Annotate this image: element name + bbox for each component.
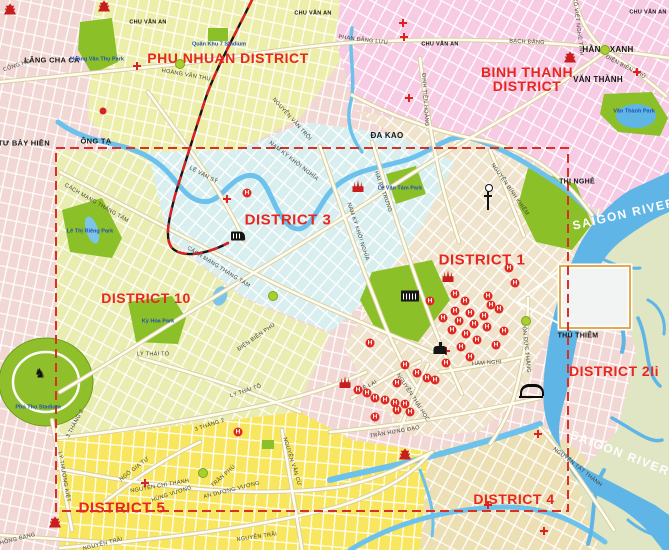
hotel-icon: H (442, 359, 451, 368)
pagoda-icon (4, 4, 16, 15)
hotel-icon: H (426, 297, 435, 306)
road-label: LÝ THƯỜNG KIỆT (56, 451, 70, 502)
road-label: TÔN ĐỨC THẮNG (520, 323, 531, 374)
hospital-icon (400, 33, 408, 41)
market-icon (434, 346, 447, 354)
place-label: THỊ NGHÈ (559, 179, 595, 186)
place-label: CHU VĂN AN (629, 10, 666, 16)
road-label: LÝ THÁI TỔ (137, 352, 170, 358)
road-label: LÝ THÁI TỔ (230, 384, 263, 399)
hotel-icon: H (500, 327, 509, 336)
hotel-icon: H (470, 320, 479, 329)
church-icon (443, 270, 454, 282)
road-label: NGUYỄN VĂN CỪ (281, 437, 301, 487)
hotel-icon: H (234, 428, 243, 437)
road-label: CÁCH MẠNG THÁNG TÁM (63, 183, 129, 224)
hotel-icon: H (505, 264, 514, 273)
park-label: Hoàng Văn Thụ Park (70, 57, 124, 63)
hotel-icon: H (451, 307, 460, 316)
road-label: NAM KỲ KHỞI NGHĨA (267, 141, 318, 183)
place-label: ĐA KAO (370, 132, 403, 140)
district-label: DISTRICT 10 (101, 291, 191, 305)
road-label: NGUYỄN BỈNH KHIÊM (489, 163, 529, 217)
road-label: NGUYỄN TẤT THÀNH (552, 447, 603, 489)
hotel-icon: H (401, 361, 410, 370)
park-label: Văn Thành Park (613, 109, 655, 115)
hospital-icon (484, 501, 492, 509)
labels-and-icons-layer: PHU NHUAN DISTRICTBINH THANHDISTRICTDIST… (0, 0, 669, 550)
district-label: DISTRICT 3 (245, 213, 332, 228)
hotel-icon: H (484, 292, 493, 301)
park-label: Lê Thị Riêng Park (67, 229, 113, 235)
road-label: XÔ VIẾT NGHỆ TĨNH (571, 0, 584, 56)
hotel-icon: H (366, 339, 375, 348)
hospital-icon (405, 94, 413, 102)
road-label: HỒNG BÀNG (0, 533, 36, 547)
road-label: CỘNG HÒA (3, 58, 35, 73)
railway-station-icon (231, 232, 245, 241)
road-label: ĐIỆN BIÊN PHỦ (237, 323, 277, 353)
hospital-icon (534, 430, 542, 438)
road-label: HOÀNG VĂN THỤ (161, 69, 211, 83)
road-label: NGUYỄN TRÃI (236, 532, 277, 543)
hotel-icon: H (466, 353, 475, 362)
pagoda-icon (98, 1, 110, 12)
hotel-icon: H (439, 314, 448, 323)
road-label: TRẦN PHÚ (211, 465, 237, 490)
roundabout-icon (175, 59, 185, 69)
hotel-icon: H (457, 343, 466, 352)
bridge-icon (520, 384, 544, 396)
river-label: SAIGON RIVER (571, 196, 669, 231)
hotel-icon: H (466, 309, 475, 318)
hotel-icon: H (243, 189, 252, 198)
palace-icon (401, 291, 419, 302)
pagoda-icon (399, 449, 411, 460)
hospital-icon (223, 195, 231, 203)
roundabout-icon (198, 468, 208, 478)
place-label: VĂN THÀNH (573, 76, 623, 84)
place-label: THỦ THIÊM (558, 333, 599, 340)
hotel-icon: H (371, 413, 380, 422)
district-label: DISTRICT 2Ii (569, 364, 659, 378)
road-label: NGUYỄN VĂN TRỖI (270, 98, 311, 143)
hotel-icon: H (393, 406, 402, 415)
road-label: CÁCH MẠNG THÁNG TÁM (186, 246, 251, 289)
place-label: CHU VĂN AN (421, 42, 458, 48)
road-label: TRẦN HƯNG ĐẠO (370, 426, 421, 440)
church-icon (340, 376, 351, 388)
place-label: CHU VĂN AN (294, 11, 331, 17)
pagoda-icon (49, 517, 61, 528)
tv-tower-icon (487, 186, 489, 210)
hotel-icon: H (451, 290, 460, 299)
hotel-icon: H (431, 376, 440, 385)
road-label: 3 THÁNG 2 (66, 409, 85, 439)
hotel-icon: H (461, 297, 470, 306)
roundabout-icon (268, 291, 278, 301)
pagoda-icon (564, 52, 576, 63)
park-label: Quân Khu 7 Stadium (192, 42, 246, 48)
road-label: LÊ VĂN SỸ (188, 166, 218, 185)
district-label: PHU NHUAN DISTRICT (147, 51, 308, 65)
hospital-icon (399, 19, 407, 27)
place-label: NGÃ TƯ BẢY HIỀN (0, 139, 50, 147)
hotel-icon: H (448, 326, 457, 335)
hotel-icon: H (495, 305, 504, 314)
hotel-icon: H (462, 330, 471, 339)
hospital-icon (633, 68, 641, 76)
park-label: Kỳ Hòa Park (142, 319, 174, 325)
road-label: BẠCH ĐẰNG (509, 39, 545, 46)
hotel-icon: H (413, 369, 422, 378)
church-icon (353, 180, 364, 192)
park-label: Lê Văn Tám Park (378, 186, 422, 192)
hotel-icon: H (381, 396, 390, 405)
road-label: NGUYỄN TRÃI (83, 537, 124, 550)
road-label: 3 THÁNG 2 (194, 419, 225, 434)
city-map: PHU NHUAN DISTRICTBINH THANHDISTRICTDIST… (0, 0, 669, 550)
hospital-icon (141, 479, 149, 487)
district-label: BINH THANH (481, 65, 573, 79)
place-label: ÔNG TẠ (81, 137, 112, 145)
horse-icon: ♞ (34, 367, 46, 382)
hotel-icon: H (492, 341, 501, 350)
poi-dot-icon (100, 108, 107, 115)
hotel-icon: H (354, 386, 363, 395)
hotel-icon: H (393, 379, 402, 388)
hotel-icon: H (480, 312, 489, 321)
hotel-icon: H (406, 408, 415, 417)
road-label: HÀM NGHI (472, 360, 502, 368)
hospital-icon (133, 62, 141, 70)
roundabout-icon (521, 316, 531, 326)
hotel-icon: H (371, 394, 380, 403)
road-label: PHAN ĐĂNG LƯU (338, 35, 388, 47)
district-label: DISTRICT (493, 79, 562, 93)
road-label: HAI BÀ TRƯNG (372, 171, 392, 214)
hotel-icon: H (473, 336, 482, 345)
road-label: NAM KỲ KHỞI NGHĨA (345, 202, 369, 261)
hotel-icon: H (483, 323, 492, 332)
place-label: CHU VĂN AN (129, 20, 166, 26)
road-label: ĐINH TIÊN HOÀNG (419, 73, 428, 127)
hotel-icon: H (511, 279, 520, 288)
park-label: Phú Thọ Stadium (15, 405, 60, 411)
roundabout-icon (600, 45, 610, 55)
hotel-icon: H (455, 317, 464, 326)
hospital-icon (540, 527, 548, 535)
